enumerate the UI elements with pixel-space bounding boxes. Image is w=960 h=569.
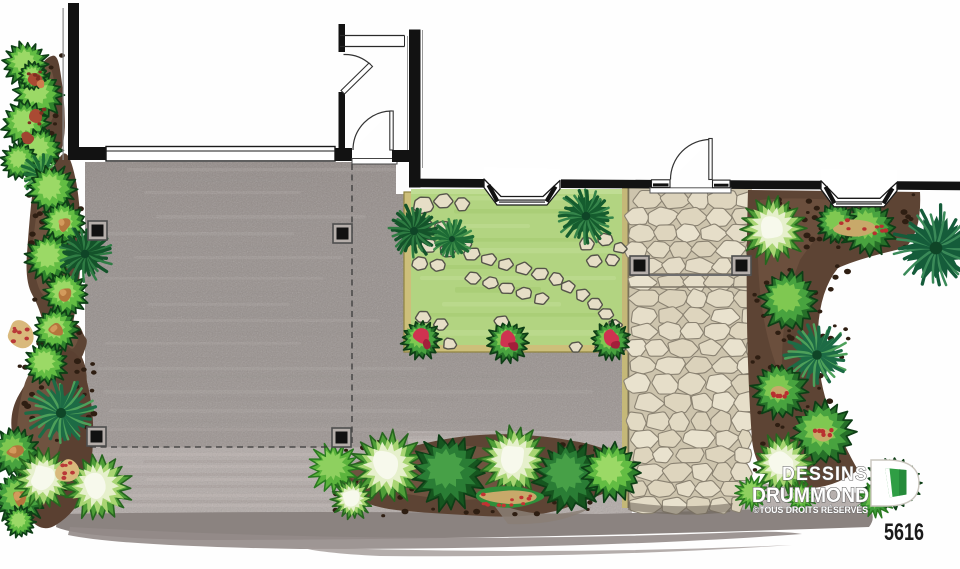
svg-text:DESSINS: DESSINS xyxy=(782,464,868,485)
svg-text:DRUMMOND: DRUMMOND xyxy=(752,484,869,507)
svg-text:©TOUS DROITS RÉSERVÉS: ©TOUS DROITS RÉSERVÉS xyxy=(753,505,868,515)
svg-text:5616: 5616 xyxy=(884,519,924,546)
